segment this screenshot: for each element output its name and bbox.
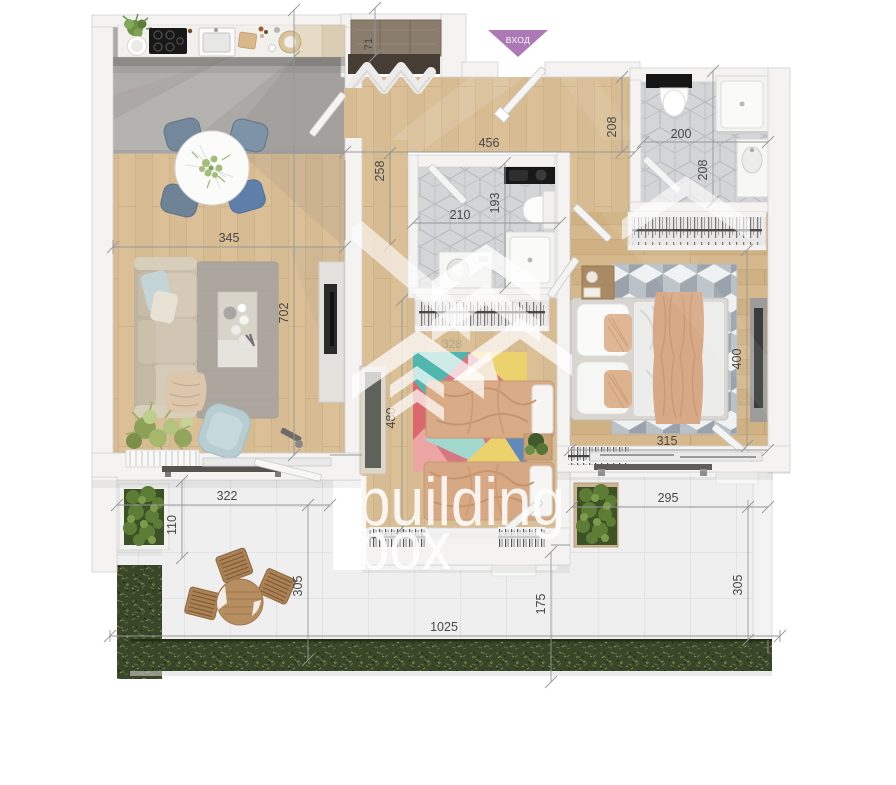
svg-text:345: 345 bbox=[219, 231, 240, 245]
svg-text:258: 258 bbox=[373, 161, 387, 182]
svg-text:315: 315 bbox=[657, 434, 678, 448]
svg-text:210: 210 bbox=[450, 208, 471, 222]
svg-text:456: 456 bbox=[479, 136, 500, 150]
svg-text:200: 200 bbox=[671, 127, 692, 141]
svg-text:322: 322 bbox=[217, 489, 238, 503]
svg-text:305: 305 bbox=[291, 576, 305, 597]
svg-text:702: 702 bbox=[277, 303, 291, 324]
svg-text:ВХОД: ВХОД bbox=[506, 35, 530, 45]
svg-text:208: 208 bbox=[696, 160, 710, 181]
svg-text:175: 175 bbox=[534, 594, 548, 615]
svg-text:1025: 1025 bbox=[430, 620, 458, 634]
svg-text:295: 295 bbox=[658, 491, 679, 505]
svg-text:400: 400 bbox=[730, 349, 744, 370]
svg-text:193: 193 bbox=[488, 193, 502, 214]
svg-text:71: 71 bbox=[363, 38, 375, 50]
svg-text:305: 305 bbox=[731, 575, 745, 596]
svg-text:box: box bbox=[357, 508, 451, 584]
svg-text:208: 208 bbox=[605, 117, 619, 138]
svg-text:110: 110 bbox=[165, 515, 179, 535]
